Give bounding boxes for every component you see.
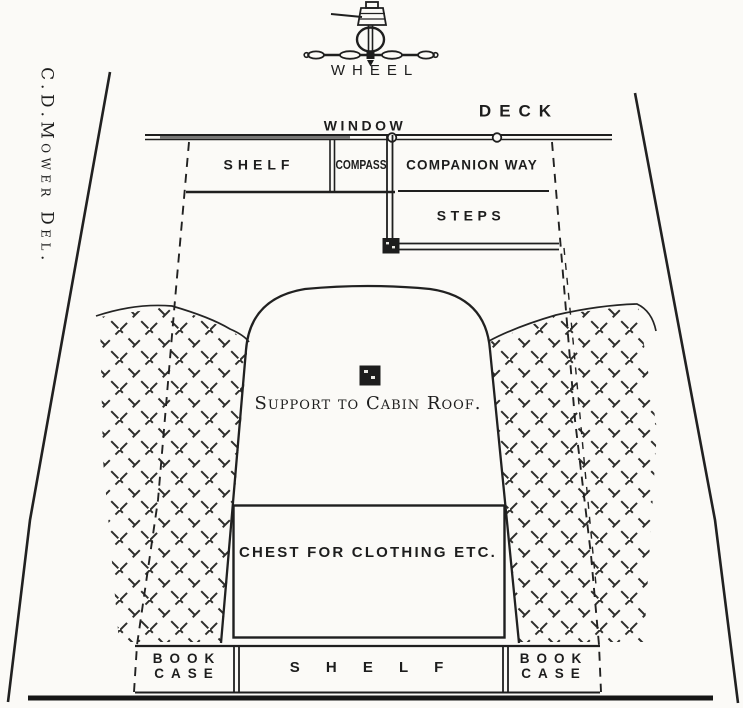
- plan-linework: [0, 0, 743, 708]
- bookcase-line: CASE: [153, 667, 222, 682]
- steps-label: STEPS: [437, 208, 505, 223]
- wheel-label: WHEEL: [331, 63, 419, 80]
- artist-credit: C.D.Mower Del.: [37, 67, 56, 265]
- companionway-label: COMPANION WAY: [406, 159, 538, 174]
- shelf-compass-boxes: [186, 135, 395, 243]
- shelf-bottom-label: S H E L F: [290, 660, 455, 677]
- deck-label: DECK: [479, 103, 559, 122]
- bookcase-line: CASE: [520, 667, 589, 682]
- compass-label: COMPASS: [335, 159, 386, 173]
- bookcase-line: BOOK: [520, 652, 589, 667]
- window-label: WINDOW: [324, 118, 406, 133]
- chest-box: [234, 506, 505, 638]
- shelf-top-label: SHELF: [224, 157, 295, 172]
- bookcase-right-label: BOOK CASE: [520, 652, 589, 682]
- bookcase-left-label: BOOK CASE: [153, 652, 222, 682]
- chest-label: CHEST FOR CLOTHING ETC.: [239, 545, 497, 562]
- bulkhead-window-line: [145, 135, 612, 140]
- engraving-plate: WHEEL DECK WINDOW SHELF COMPASS COMPANIO…: [0, 0, 743, 708]
- bookcase-line: BOOK: [153, 652, 222, 667]
- support-label: Support to Cabin Roof.: [255, 394, 482, 414]
- wheel-icon: [304, 2, 438, 67]
- support-post-icon: [360, 366, 381, 386]
- cabin-roof-arch: [221, 286, 519, 643]
- steps-post-icon: [383, 238, 400, 254]
